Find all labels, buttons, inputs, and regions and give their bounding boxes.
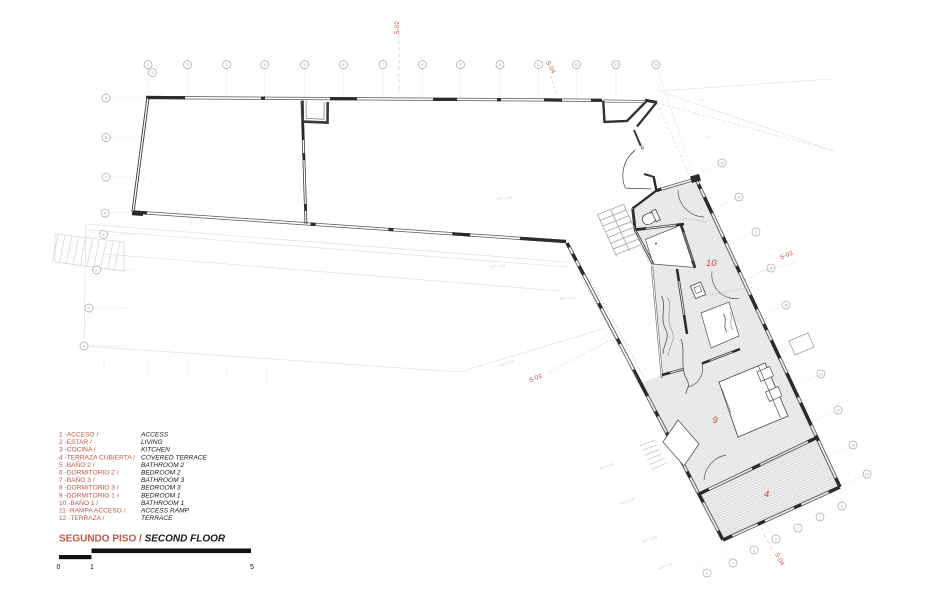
svg-text:19: 19	[784, 303, 788, 307]
svg-text:1: 1	[147, 63, 149, 67]
svg-text:1 -ACCESO /: 1 -ACCESO /	[59, 432, 98, 439]
svg-text:4: 4	[764, 488, 769, 499]
svg-text:23: 23	[851, 443, 855, 447]
svg-text:5: 5	[304, 63, 306, 67]
svg-text:BEDROOM 3: BEDROOM 3	[141, 485, 181, 492]
svg-text:e: e	[706, 571, 708, 575]
svg-text:6 -DORMITORIO 2 /: 6 -DORMITORIO 2 /	[59, 470, 119, 477]
svg-text:10 -BAÑO 1 /: 10 -BAÑO 1 /	[59, 498, 98, 507]
svg-text:ACCESS RAMP: ACCESS RAMP	[140, 508, 190, 515]
svg-text:22: 22	[836, 408, 840, 412]
svg-text:h: h	[775, 537, 777, 541]
svg-text:LIVING: LIVING	[141, 439, 163, 446]
svg-text:j: j	[819, 515, 821, 519]
svg-text:24: 24	[865, 472, 869, 476]
svg-text:8 -DORMITORIO 3 /: 8 -DORMITORIO 3 /	[59, 485, 119, 492]
svg-text:8: 8	[422, 63, 424, 67]
svg-text:12: 12	[707, 135, 711, 139]
svg-text:TERRACE: TERRACE	[141, 515, 173, 522]
svg-text:11: 11	[537, 63, 541, 67]
svg-text:4: 4	[264, 63, 266, 67]
svg-text:ACCESS: ACCESS	[140, 432, 169, 439]
svg-text:4 -TERRAZA CUBIERTA /: 4 -TERRAZA CUBIERTA /	[59, 454, 135, 461]
svg-text:5 -BAÑO 2 /: 5 -BAÑO 2 /	[59, 460, 95, 469]
svg-text:g: g	[753, 548, 755, 552]
svg-text:KITCHEN: KITCHEN	[141, 447, 170, 454]
svg-text:14: 14	[654, 63, 658, 67]
svg-text:5: 5	[250, 564, 254, 571]
svg-text:f: f	[733, 561, 734, 565]
svg-text:10: 10	[498, 63, 502, 67]
svg-text:3: 3	[226, 63, 228, 67]
svg-text:1: 1	[151, 71, 153, 75]
svg-text:12: 12	[575, 63, 579, 67]
svg-text:BEDROOM 1: BEDROOM 1	[141, 492, 181, 499]
svg-text:3 -COCINA /: 3 -COCINA /	[59, 447, 96, 454]
svg-text:17: 17	[754, 230, 758, 234]
svg-text:k: k	[841, 504, 843, 508]
svg-text:1: 1	[90, 564, 94, 571]
svg-text:7: 7	[382, 63, 384, 67]
svg-text:15: 15	[720, 161, 724, 165]
svg-text:13: 13	[614, 63, 618, 67]
svg-text:7 -BAÑO 3 /: 7 -BAÑO 3 /	[59, 475, 95, 484]
svg-text:16: 16	[737, 195, 741, 199]
svg-text:18: 18	[769, 266, 773, 270]
svg-text:S-02: S-02	[394, 21, 401, 35]
svg-text:9: 9	[460, 63, 462, 67]
svg-text:9: 9	[713, 414, 719, 425]
svg-text:SEGUNDO PISO / SECOND FLOOR: SEGUNDO PISO / SECOND FLOOR	[59, 534, 226, 545]
svg-text:9 -DORMITORIO 1 /: 9 -DORMITORIO 1 /	[59, 492, 119, 499]
svg-text:12 -TERRAZA /: 12 -TERRAZA /	[59, 515, 105, 522]
svg-text:12: 12	[700, 98, 704, 102]
svg-text:F: F	[95, 268, 97, 272]
svg-text:6: 6	[343, 63, 345, 67]
svg-text:0: 0	[57, 564, 61, 571]
svg-text:21: 21	[819, 372, 823, 376]
svg-text:BATHROOM 1: BATHROOM 1	[141, 500, 184, 507]
svg-text:11 -RAMPA ACCESO /: 11 -RAMPA ACCESO /	[59, 508, 126, 515]
svg-text:BEDROOM 2: BEDROOM 2	[141, 470, 181, 477]
svg-text:BATHROOM 3: BATHROOM 3	[141, 477, 184, 484]
svg-text:2 -ESTAR /: 2 -ESTAR /	[59, 439, 92, 446]
svg-text:BATHROOM 2: BATHROOM 2	[141, 462, 184, 469]
svg-text:G: G	[88, 306, 91, 310]
svg-text:10: 10	[706, 257, 717, 268]
svg-text:COVERED TERRACE: COVERED TERRACE	[141, 454, 208, 461]
svg-text:2: 2	[187, 63, 189, 67]
